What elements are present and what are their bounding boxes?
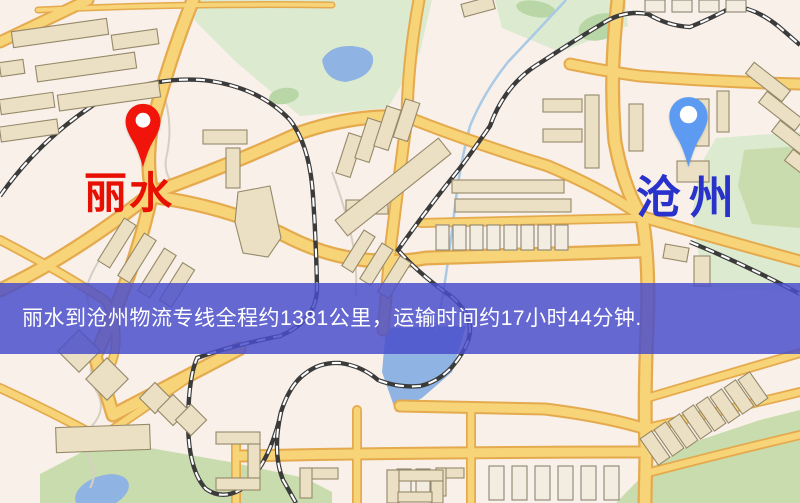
destination-label: 沧州 bbox=[636, 175, 742, 220]
destination-pin-icon bbox=[665, 96, 712, 168]
origin-pin-icon bbox=[124, 102, 162, 169]
origin-pin[interactable] bbox=[124, 102, 162, 169]
banner-text: 丽水到沧州物流专线全程约1381公里，运输时间约17小时44分钟. bbox=[0, 283, 800, 354]
destination-pin[interactable] bbox=[665, 96, 712, 168]
info-banner: 丽水到沧州物流专线全程约1381公里，运输时间约17小时44分钟. bbox=[0, 283, 800, 354]
map-canvas[interactable]: 丽水到沧州物流专线全程约1381公里，运输时间约17小时44分钟. 丽水 沧州 bbox=[0, 0, 800, 503]
origin-label: 丽水 bbox=[84, 173, 174, 216]
map-graphic bbox=[0, 0, 800, 503]
